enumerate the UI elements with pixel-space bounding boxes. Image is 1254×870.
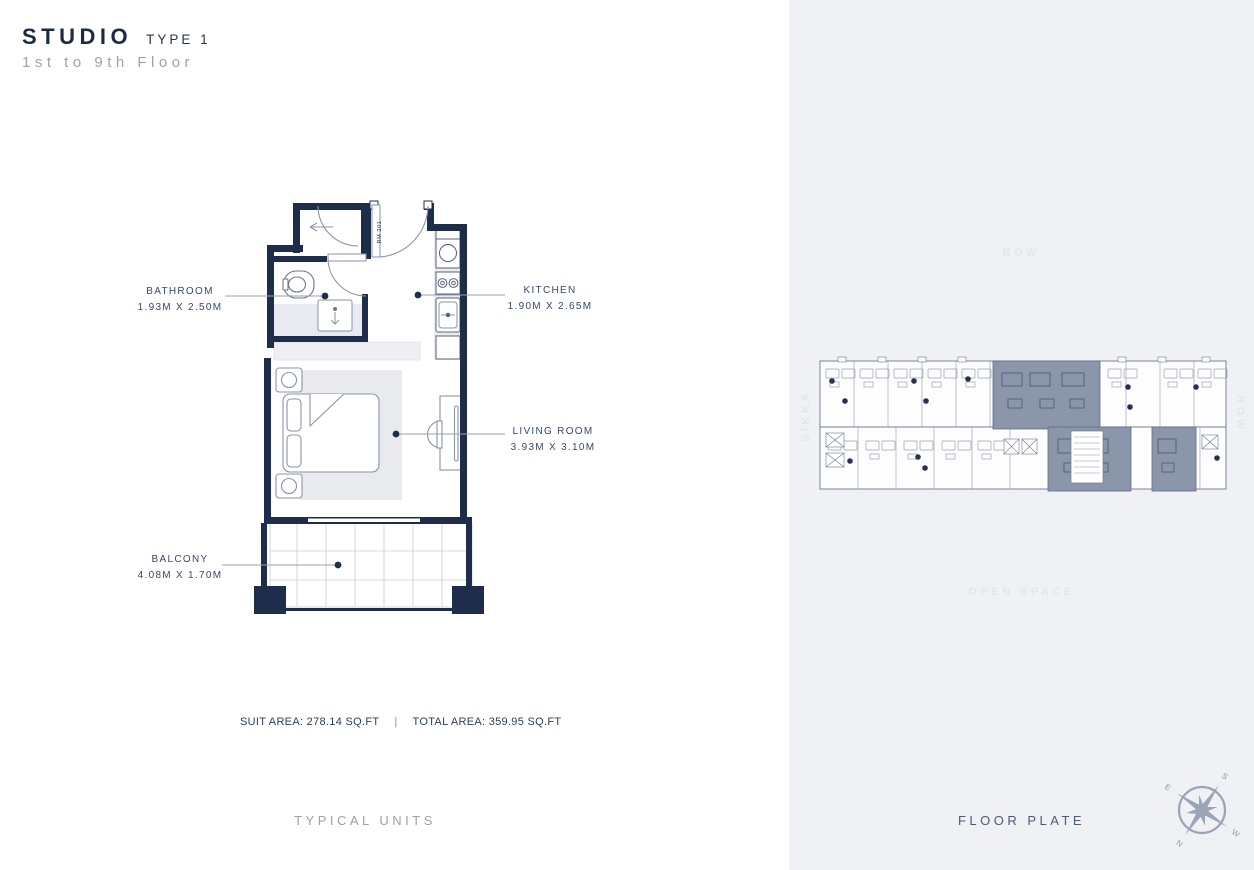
fridge-icon [436,230,460,268]
kitchen-dims: 1.90M X 2.65M [480,299,620,315]
label-living-room: LIVING ROOM 3.93M X 3.10M [480,424,626,456]
toilet-icon [283,271,314,298]
sikka-label: SIKKA [800,386,812,446]
stove-icon [436,272,460,294]
living-room-name: LIVING ROOM [513,426,594,437]
caption-typical-units: TYPICAL UNITS [115,813,615,828]
balcony-dims: 4.08M X 1.70M [105,568,255,584]
page-title: STUDIO TYPE 1 [22,24,211,50]
entry-corridor [274,342,420,360]
stair-core [1071,431,1103,483]
balcony-name: BALCONY [152,554,209,565]
compass-s: S [1220,771,1229,781]
desk-icon [440,396,462,470]
floor-plate-drawing [818,355,1228,495]
kitchen-sink-icon [436,298,460,332]
sliding-door [308,519,420,523]
compass-e: E [1163,782,1172,792]
area-summary: SUIT AREA: 278.14 SQ.FT | TOTAL AREA: 35… [240,716,561,728]
suit-area: SUIT AREA: 278.14 SQ.FT [240,716,379,728]
area-separator: | [394,716,397,728]
row-top-label: ROW [789,247,1254,259]
open-space-label: OPEN SPACE [789,586,1254,598]
nightstand-top [276,368,302,392]
label-kitchen: KITCHEN 1.90M X 2.65M [480,283,620,315]
room-number-tag: RM 201 [377,221,383,244]
bathroom-door [328,254,366,296]
title-main: STUDIO [22,24,132,50]
bed-icon [283,394,379,472]
row-right-label: ROW [1234,386,1246,442]
shower-room-door [310,206,358,246]
kitchen-cabinet [436,336,460,359]
label-balcony: BALCONY 4.08M X 1.70M [105,552,255,584]
title-floors: 1st to 9th Floor [22,54,194,71]
label-bathroom: BATHROOM 1.93M X 2.50M [105,284,255,316]
compass-rose-icon: N S E W [1160,768,1248,856]
compass-w: W [1230,827,1242,839]
kitchen-name: KITCHEN [524,285,577,296]
bathroom-name: BATHROOM [146,286,213,297]
living-room-dims: 3.93M X 3.10M [480,440,626,456]
nightstand-bottom [276,474,302,498]
title-type: TYPE 1 [146,32,211,47]
total-area: TOTAL AREA: 359.95 SQ.FT [413,716,562,728]
compass-n: N [1174,838,1184,849]
unit-floor-plan: RM 201 [215,195,515,625]
bathroom-dims: 1.93M X 2.50M [105,300,255,316]
vanity-sink-icon [318,300,352,331]
